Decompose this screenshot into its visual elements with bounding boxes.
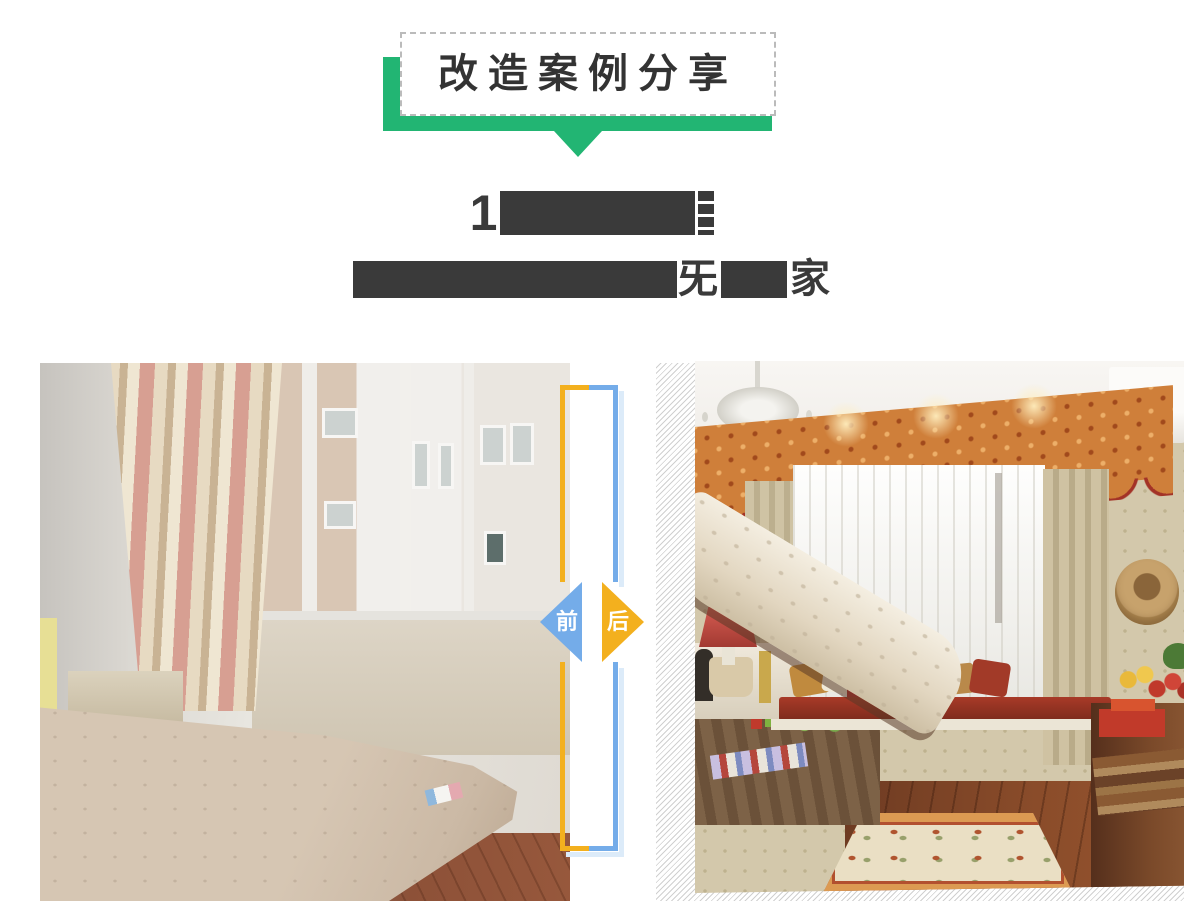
banner-dashed-box: 改造案例分享: [400, 32, 776, 116]
after-label: 后: [607, 611, 629, 633]
before-building-window: [510, 423, 534, 465]
before-building-window: [480, 425, 506, 465]
case-title-redaction-bar: [500, 191, 695, 235]
before-photo: [40, 363, 570, 901]
before-building-window: [322, 408, 358, 438]
banner-title: 改造案例分享: [438, 54, 738, 94]
case-subtitle: 旡 家: [0, 261, 1184, 298]
wall-hat: [1115, 559, 1179, 625]
gold-stand: [759, 651, 771, 703]
red-gift-box: [1099, 709, 1165, 737]
case-subtitle-visible-fragment-2: 家: [790, 261, 830, 298]
after-photo: [695, 361, 1184, 893]
divider-bottom-border: [560, 846, 618, 851]
case-title: 1: [0, 188, 1184, 238]
before-building-window: [324, 501, 356, 529]
divider-left-border: [560, 385, 565, 582]
banner-ribbon-arrow-icon: [554, 131, 602, 157]
book-stack: [1092, 748, 1184, 816]
before-window-frame: [302, 363, 317, 613]
before-window-frame: [464, 363, 474, 613]
before-window-frame: [400, 363, 411, 613]
case-title-visible-prefix: 1: [470, 190, 498, 236]
window-seat-pillow: [969, 658, 1012, 698]
case-subtitle-redaction-bar-right: [721, 261, 787, 298]
divider-left-border: [560, 662, 565, 851]
before-building-window: [412, 441, 430, 489]
green-plant: [1163, 643, 1184, 669]
divider-shadow: [566, 852, 624, 857]
case-subtitle-visible-fragment-1: 旡: [678, 261, 718, 298]
before-building-window: [484, 531, 506, 565]
ceiling-spotlight-glow: [913, 393, 959, 439]
divider-right-border: [613, 385, 618, 582]
divider-shadow: [619, 391, 624, 587]
after-window-sash: [995, 473, 1002, 623]
after-area-rug: [823, 813, 1073, 893]
before-building-window: [438, 443, 454, 489]
case-subtitle-redaction-bar-left: [353, 261, 677, 298]
before-window-sill: [252, 611, 570, 620]
case-title-redaction-cap: [698, 191, 714, 235]
red-flowers: [1145, 669, 1184, 705]
divider-top-border: [560, 385, 618, 390]
before-label: 前: [556, 611, 578, 633]
page: 改造案例分享 1 旡 家: [0, 0, 1184, 901]
before-window: [252, 363, 570, 613]
table-lamp-base: [722, 647, 735, 665]
divider-shadow: [619, 668, 624, 857]
ceiling-spotlight-glow: [1011, 383, 1057, 429]
window-seat-sill: [771, 719, 1119, 730]
divider-right-border: [613, 662, 618, 851]
ceiling-spotlight-glow: [823, 401, 869, 447]
